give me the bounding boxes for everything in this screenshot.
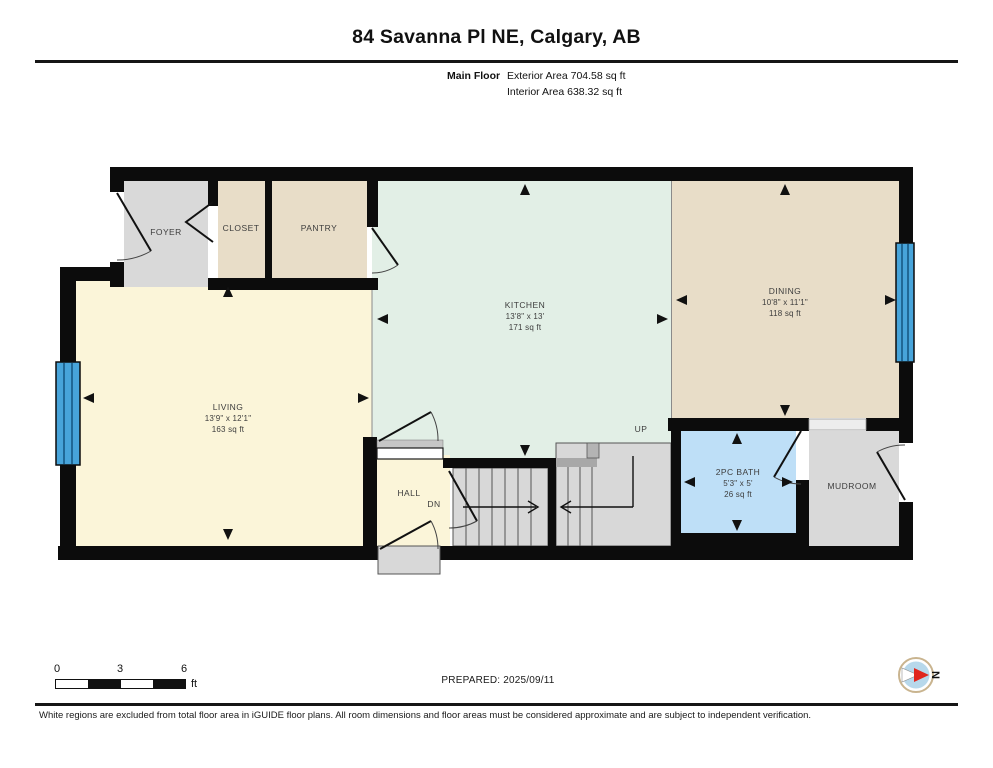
hall-doorway-strip <box>377 440 443 448</box>
bath-name: 2PC BATH <box>716 467 761 478</box>
footer-divider <box>35 703 958 706</box>
prepared-date: PREPARED: 2025/09/11 <box>441 675 554 686</box>
room-label-mudroom: MUDROOM <box>828 481 877 491</box>
kitchen-dims: 13'8" x 13' <box>505 311 545 322</box>
stairs-down-label: DN <box>427 499 440 509</box>
room-label-bath: 2PC BATH 5'3" x 5' 26 sq ft <box>716 467 761 500</box>
room-label-dining: DINING 10'8" x 11'1" 118 sq ft <box>762 286 808 319</box>
kitchen-name: KITCHEN <box>505 300 545 311</box>
stairs-up <box>556 443 671 546</box>
room-label-living: LIVING 13'9" x 12'1" 163 sq ft <box>205 402 251 435</box>
stairs-up-label: UP <box>635 424 648 434</box>
disclaimer-text: White regions are excluded from total fl… <box>39 710 811 721</box>
scale-segment <box>88 680 120 688</box>
scale-tick-6: 6 <box>181 663 187 675</box>
room-label-closet: CLOSET <box>223 223 260 233</box>
living-area: 163 sq ft <box>205 424 251 435</box>
room-label-kitchen: KITCHEN 13'8" x 13' 171 sq ft <box>505 300 545 333</box>
window-left <box>56 362 80 465</box>
bath-dims: 5'3" x 5' <box>716 478 761 489</box>
floor-plan-drawing: N <box>0 0 993 768</box>
room-label-foyer: FOYER <box>150 227 182 237</box>
scale-bar <box>55 679 186 689</box>
kitchen-area: 171 sq ft <box>505 322 545 333</box>
scale-tick-0: 0 <box>54 663 60 675</box>
compass-north-label: N <box>929 671 941 679</box>
bath-area: 26 sq ft <box>716 489 761 500</box>
scale-unit-label: ft <box>191 678 197 690</box>
dining-name: DINING <box>762 286 808 297</box>
stairs-down <box>453 468 548 546</box>
room-label-pantry: PANTRY <box>301 223 337 233</box>
living-name: LIVING <box>205 402 251 413</box>
room-label-hall: HALL <box>397 488 420 498</box>
compass-icon: N <box>899 658 941 692</box>
hall-doorway-threshold <box>377 448 443 459</box>
floor-plan-page: 84 Savanna Pl NE, Calgary, AB Main Floor… <box>0 0 993 768</box>
back-door-landing <box>378 546 440 574</box>
scale-tick-3: 3 <box>117 663 123 675</box>
scale-segment <box>121 680 153 688</box>
scale-segment <box>56 680 88 688</box>
window-right <box>896 243 914 362</box>
living-dims: 13'9" x 12'1" <box>205 413 251 424</box>
dining-dims: 10'8" x 11'1" <box>762 297 808 308</box>
dining-mudroom-opening <box>809 419 866 430</box>
scale-segment <box>153 680 185 688</box>
dining-area: 118 sq ft <box>762 308 808 319</box>
